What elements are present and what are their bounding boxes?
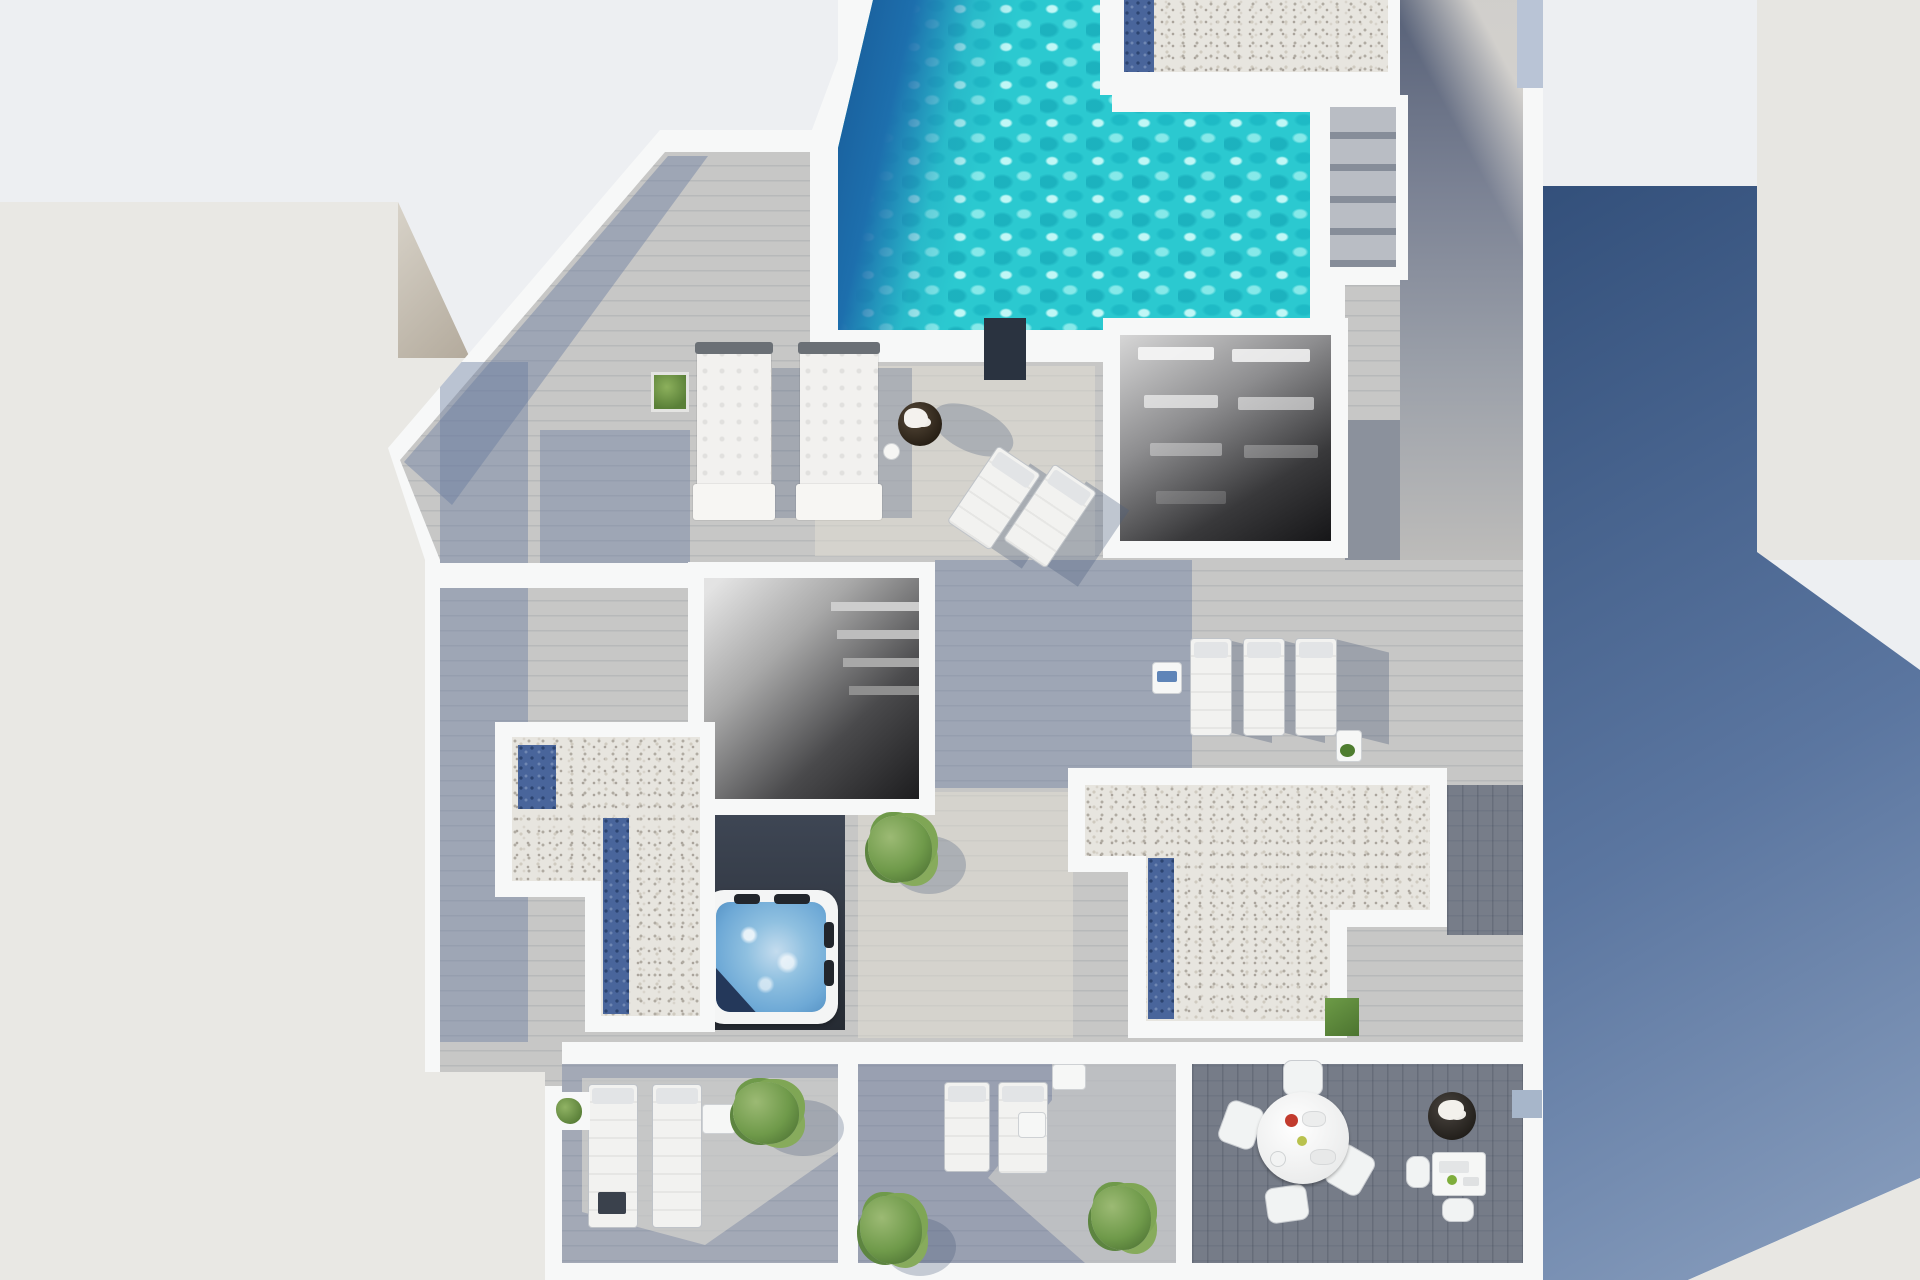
bush xyxy=(860,1196,922,1264)
stair-tread xyxy=(837,630,919,639)
skylight-strip-left-main xyxy=(603,818,629,1014)
table-plate xyxy=(1311,1150,1335,1164)
jacuzzi-headrest xyxy=(774,894,810,904)
towel-side-table xyxy=(1152,662,1182,694)
pergola-slat xyxy=(1244,445,1318,458)
gravel-roof-top xyxy=(1124,0,1388,72)
side-table xyxy=(702,1104,736,1134)
shadow-deck-right-of-roof xyxy=(1447,785,1523,935)
sun-lounger xyxy=(652,1084,702,1228)
coffee-table xyxy=(1432,1152,1486,1196)
stairwell-frame xyxy=(688,562,935,815)
side-table xyxy=(1052,1064,1086,1090)
stair-tread xyxy=(849,686,919,695)
daybed-shadow xyxy=(878,368,912,518)
table-red-item xyxy=(1285,1114,1298,1127)
green-apple xyxy=(1447,1175,1457,1185)
dark-lounger-mat xyxy=(984,318,1026,380)
pergola-slat xyxy=(1238,397,1314,410)
bush xyxy=(733,1082,799,1144)
pergola-frame xyxy=(1103,318,1348,558)
stair-tread xyxy=(843,658,919,667)
lounger-dark-tag xyxy=(598,1192,626,1214)
planter-box xyxy=(651,372,689,412)
small-plant xyxy=(1340,744,1355,757)
jacuzzi-headrest xyxy=(824,922,834,948)
outdoor-stairs xyxy=(1330,107,1396,267)
sun-lounger xyxy=(1295,638,1337,736)
jacuzzi-headrest xyxy=(734,894,760,904)
pergola-slat xyxy=(1144,395,1218,408)
right-building-facade xyxy=(1757,0,1920,560)
lounge-seat xyxy=(1406,1156,1430,1188)
jacuzzi xyxy=(704,890,838,1024)
sun-lounger xyxy=(1190,638,1232,736)
jacuzzi-headrest xyxy=(824,960,834,986)
daybed-skirt xyxy=(693,484,775,520)
outdoor-stairs-frame xyxy=(1318,95,1408,280)
skylight-strip-center xyxy=(1148,858,1174,1019)
pergola-slat xyxy=(1156,491,1226,504)
dining-chair xyxy=(1283,1060,1323,1096)
jacuzzi-water xyxy=(716,902,826,1012)
divider-wall-right xyxy=(1176,1042,1192,1263)
table-plate xyxy=(1303,1112,1325,1126)
daybed-headbar xyxy=(798,342,880,354)
pergola-slat xyxy=(1150,443,1222,456)
potted-plant xyxy=(556,1098,582,1124)
rooftop-render xyxy=(0,0,1920,1280)
bottom-terrace-wall xyxy=(562,1042,1523,1064)
daybed xyxy=(697,346,771,518)
right-wall-shade xyxy=(1517,0,1543,88)
divider-wall-left xyxy=(838,1042,858,1263)
dining-chair xyxy=(1264,1183,1311,1224)
jacuzzi-seat-dark xyxy=(716,902,826,1012)
serving-tray xyxy=(1018,1112,1046,1138)
planter-flowers xyxy=(904,408,928,428)
daybed xyxy=(800,346,878,518)
daybed-skirt xyxy=(796,484,882,520)
blue-towel xyxy=(1157,671,1177,682)
table-cup xyxy=(1271,1152,1285,1166)
daybed-headbar xyxy=(695,342,773,354)
gravel-roof-top-surround xyxy=(1100,0,1400,95)
lounge-seat xyxy=(1442,1198,1474,1222)
wall-connector xyxy=(1512,1090,1542,1118)
white-lamp xyxy=(884,444,899,459)
pergola-louvers xyxy=(1120,335,1331,541)
grass-patch xyxy=(1325,998,1359,1036)
shadow-center-left xyxy=(540,430,690,564)
mid-left-wall xyxy=(440,563,690,588)
sun-lounger xyxy=(944,1082,990,1172)
sun-lounger xyxy=(1243,638,1285,736)
coffee-items xyxy=(1463,1177,1479,1186)
stair-tread xyxy=(831,602,919,611)
pergola-slat xyxy=(1232,349,1310,362)
walkway-extension xyxy=(1345,420,1405,560)
bush xyxy=(868,816,932,882)
raised-walkway xyxy=(1400,0,1523,560)
stairwell-opening xyxy=(704,578,919,799)
pergola-slat xyxy=(1138,347,1214,360)
table-green-item xyxy=(1297,1136,1307,1146)
lounger-shadow xyxy=(1337,640,1389,745)
skylight-strip-top xyxy=(1124,0,1154,72)
skylight-strip-left-corner xyxy=(518,745,556,809)
coffee-tray xyxy=(1439,1161,1469,1173)
bush xyxy=(1091,1186,1151,1250)
dining-table xyxy=(1257,1092,1349,1184)
